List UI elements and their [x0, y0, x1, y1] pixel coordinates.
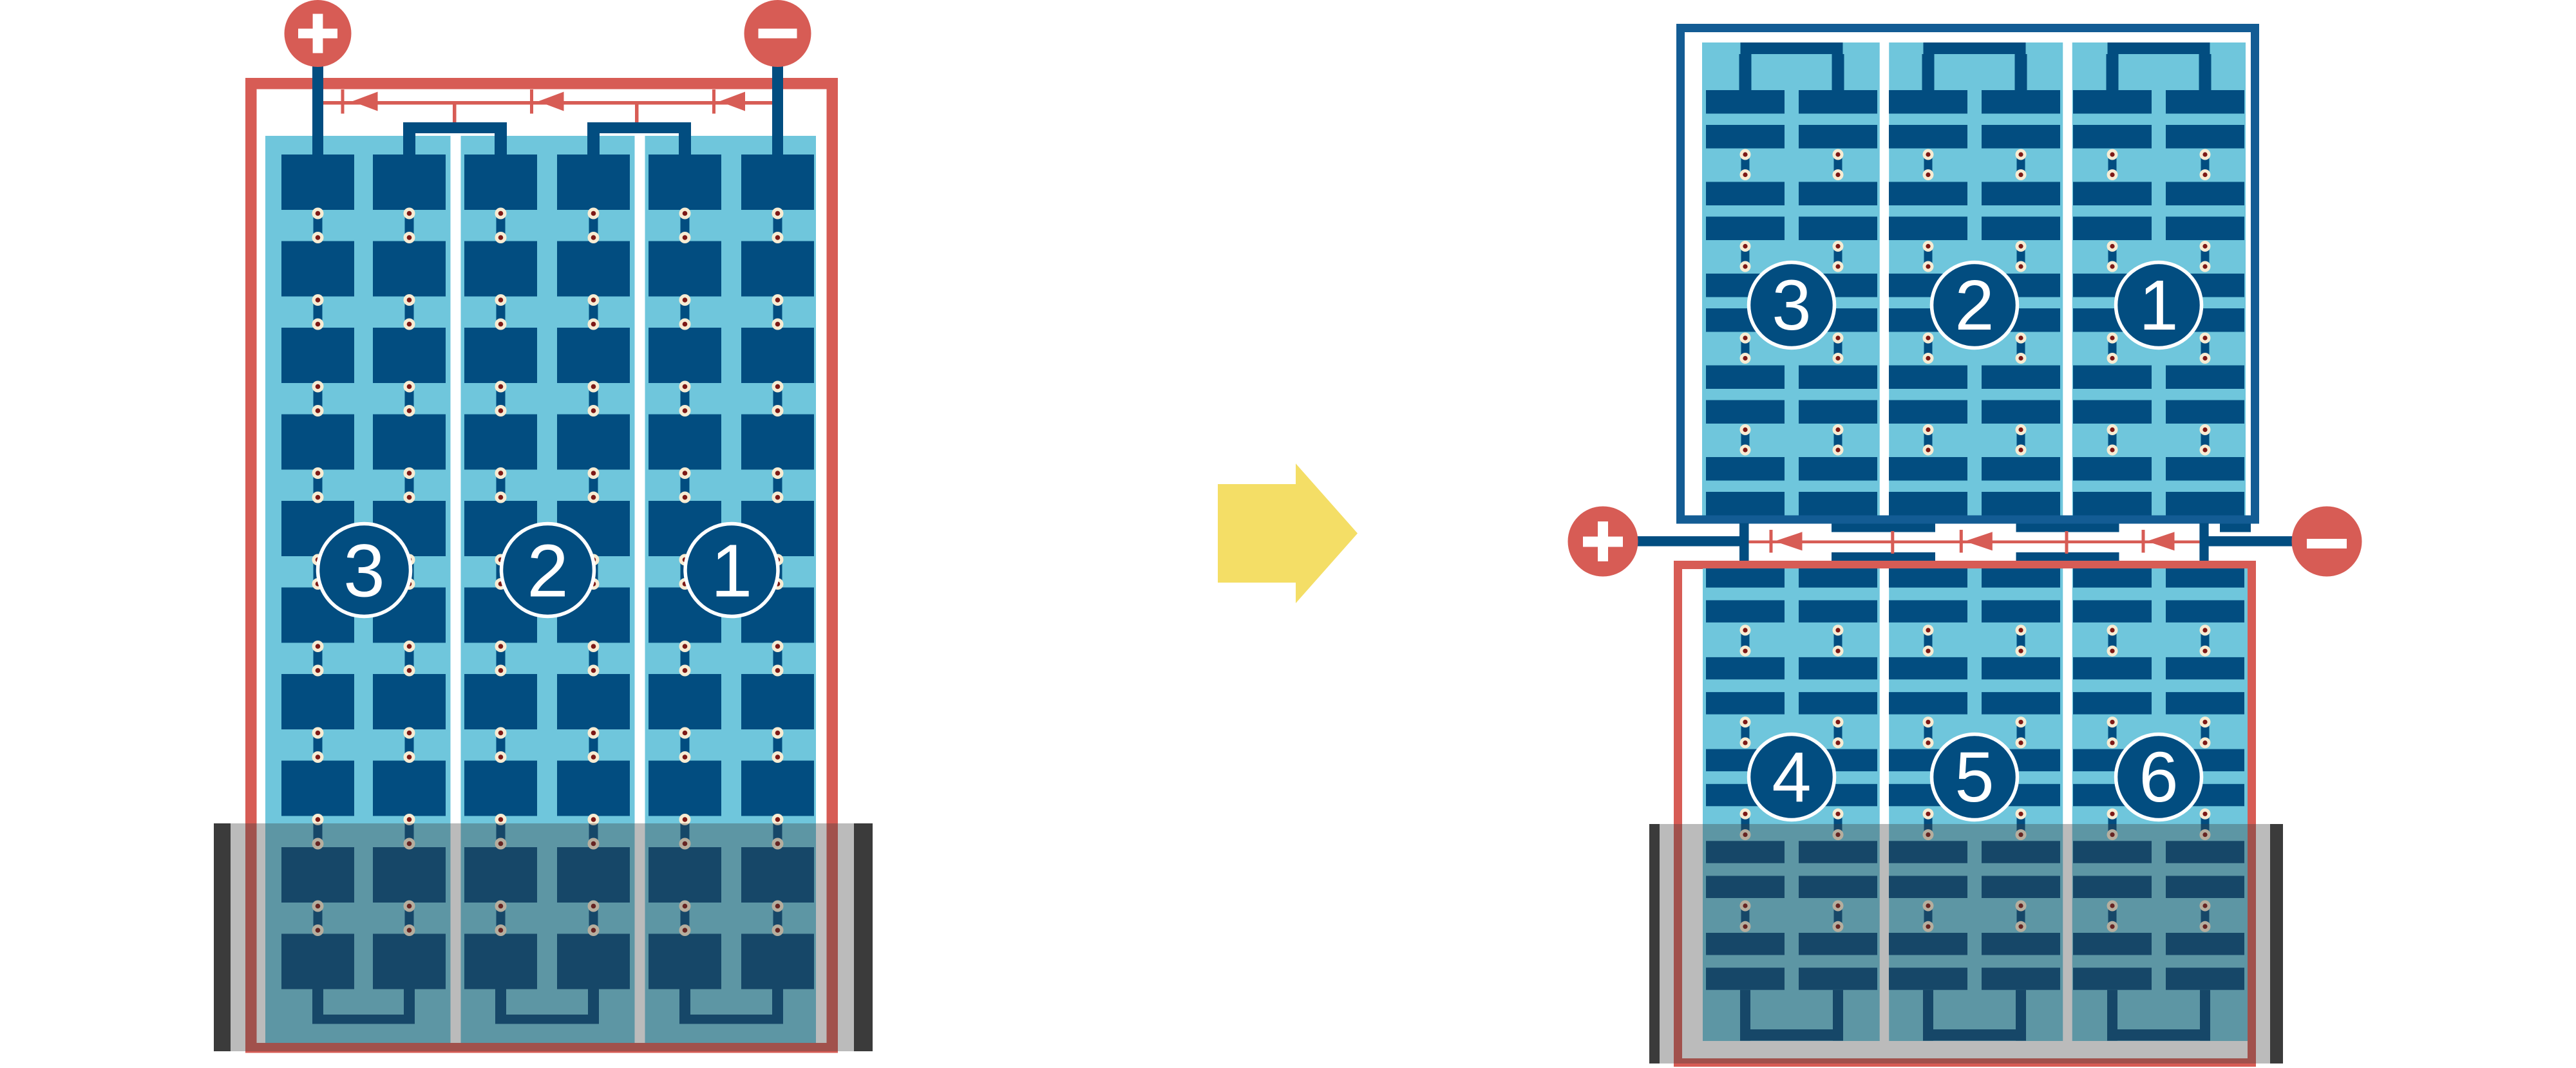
svg-text:1: 1: [711, 529, 753, 613]
svg-text:3: 3: [1772, 266, 1811, 345]
svg-text:2: 2: [527, 529, 569, 613]
svg-text:5: 5: [1955, 738, 1994, 817]
svg-text:2: 2: [1955, 266, 1994, 345]
svg-text:1: 1: [2139, 266, 2178, 345]
svg-text:6: 6: [2139, 738, 2178, 817]
svg-text:4: 4: [1772, 738, 1811, 817]
svg-text:3: 3: [343, 529, 385, 613]
